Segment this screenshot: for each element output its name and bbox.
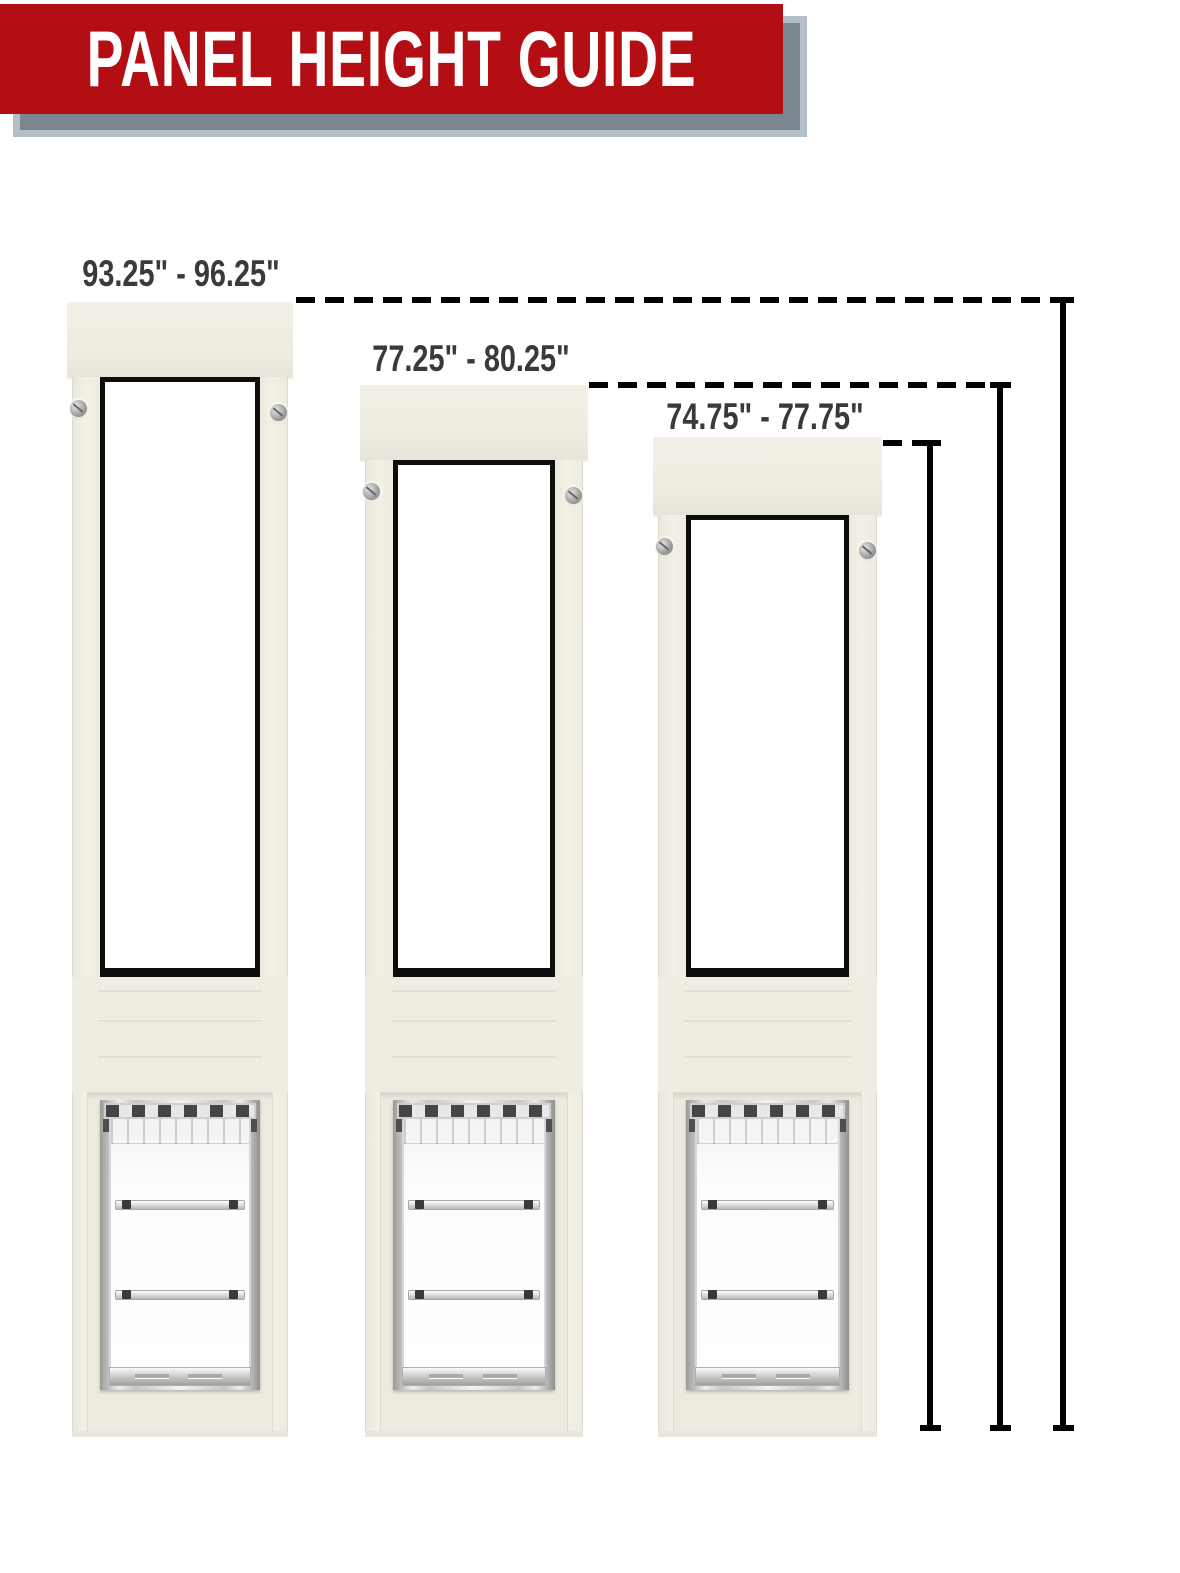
vertical-ruler-medium: [997, 382, 1003, 1428]
glass-window: [686, 515, 849, 977]
panel-top-cap: [653, 437, 882, 515]
flap-bottom-bar: [695, 1367, 840, 1386]
vertical-ruler-short: [927, 440, 933, 1428]
pet-door-flap: [109, 1119, 251, 1385]
flap-crossbar: [115, 1200, 245, 1210]
pet-door: [67, 1092, 293, 1437]
flap-bottom-bar: [109, 1367, 251, 1386]
panel-mid-section: [72, 977, 288, 1092]
pet-door: [653, 1092, 882, 1437]
pet-door: [360, 1092, 588, 1437]
vertical-ruler-tall: [1060, 297, 1066, 1428]
seam-line: [684, 1020, 851, 1022]
flap-crossbar: [408, 1290, 540, 1300]
dashed-line-short: [883, 440, 923, 446]
glass-window: [100, 377, 260, 977]
screw-icon: [270, 404, 287, 421]
seam-line: [391, 1056, 557, 1058]
seam-line: [391, 1020, 557, 1022]
flap-pleats: [111, 1119, 249, 1144]
seam-line: [391, 990, 557, 992]
measurement-label-short: 74.75" - 77.75": [648, 396, 882, 438]
seam-line: [98, 990, 262, 992]
flap-pleats: [404, 1119, 544, 1144]
measurement-label-tall: 93.25" - 96.25": [64, 253, 298, 295]
door-panel-tall: [67, 302, 293, 1437]
ruler-cap: [990, 382, 1011, 388]
flap-pleats: [697, 1119, 838, 1144]
panel-mid-section: [658, 977, 877, 1092]
dashed-line-medium: [589, 382, 993, 388]
flap-bottom-bar: [402, 1367, 546, 1386]
ruler-cap: [1053, 1425, 1074, 1431]
screw-icon: [656, 538, 673, 555]
panel-height-guide: PANEL HEIGHT GUIDE 93.25" - 96.25" 77.25…: [0, 0, 1180, 1573]
title-banner: PANEL HEIGHT GUIDE: [0, 4, 783, 114]
ruler-cap: [990, 1425, 1011, 1431]
flap-crossbar: [701, 1290, 834, 1300]
screw-icon: [70, 400, 87, 417]
measurement-label-medium: 77.25" - 80.25": [354, 338, 588, 380]
glass-window: [393, 460, 555, 977]
screw-icon: [363, 483, 380, 500]
door-panel-short: [653, 437, 882, 1437]
door-panel-medium: [360, 385, 588, 1437]
pet-door-flap: [402, 1119, 546, 1385]
seam-line: [684, 1056, 851, 1058]
ruler-cap: [920, 440, 941, 446]
ruler-cap: [1053, 297, 1074, 303]
pet-door-hinge: [690, 1103, 845, 1119]
pet-door-hinge: [397, 1103, 551, 1119]
dashed-line-tall: [296, 297, 1056, 303]
ruler-cap: [920, 1425, 941, 1431]
page-title: PANEL HEIGHT GUIDE: [87, 13, 697, 105]
flap-crossbar: [701, 1200, 834, 1210]
panel-mid-section: [365, 977, 583, 1092]
flap-crossbar: [408, 1200, 540, 1210]
seam-line: [684, 990, 851, 992]
pet-door-flap: [695, 1119, 840, 1385]
pet-door-hinge: [104, 1103, 256, 1119]
panel-top-cap: [67, 302, 293, 377]
screw-icon: [859, 542, 876, 559]
panel-top-cap: [360, 385, 588, 460]
flap-crossbar: [115, 1290, 245, 1300]
screw-icon: [565, 487, 582, 504]
seam-line: [98, 1020, 262, 1022]
seam-line: [98, 1056, 262, 1058]
